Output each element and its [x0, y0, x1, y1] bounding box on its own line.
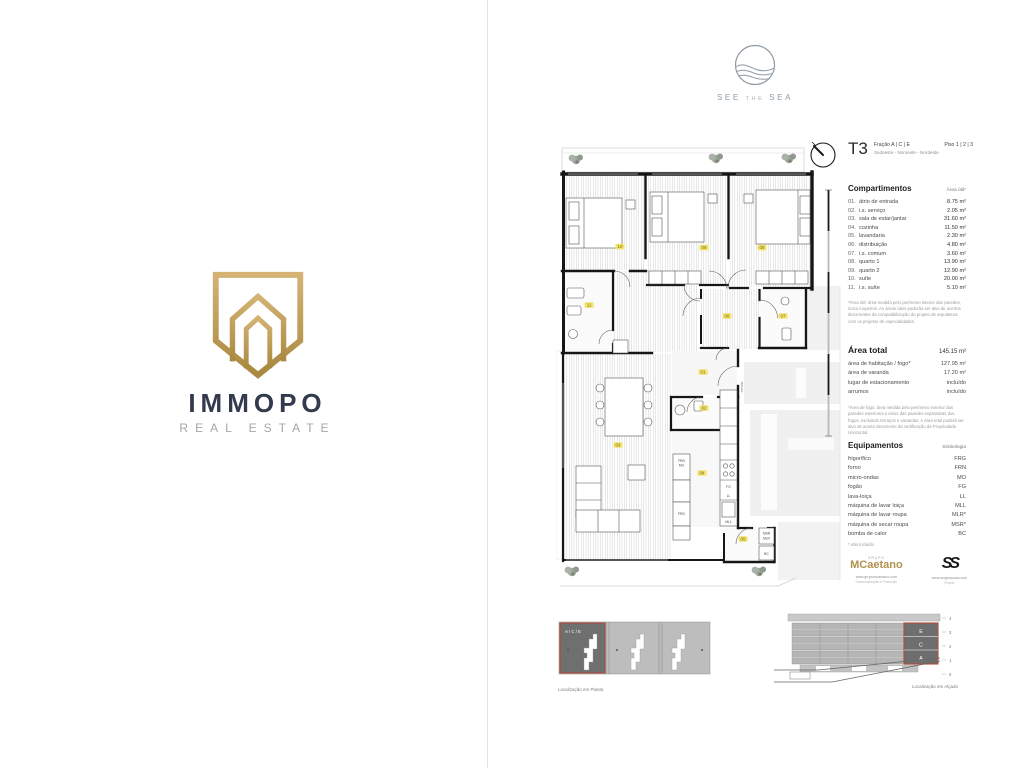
equipment-label: máquina de lavar loiça: [848, 502, 904, 511]
tag-frn: FRN: [678, 459, 685, 463]
tag-fg: FG: [726, 485, 731, 489]
fraction-label: Fração A | C | E: [874, 142, 910, 148]
compartment-row: 06.distribuição4.80 m²: [848, 241, 966, 250]
equipment-label: forno: [848, 464, 861, 473]
equipment-code: FG: [958, 483, 966, 492]
compass-icon: [811, 142, 835, 167]
room-area: 31.60 m²: [944, 215, 966, 224]
room-label-sala: 03: [616, 443, 621, 448]
totals-row-label: área de varanda: [848, 369, 889, 378]
room-label-suite: 10: [618, 244, 623, 249]
room-name: distribuição: [859, 241, 947, 250]
equipment-row: máquina de lavar roupaMLR*: [848, 511, 966, 520]
room-number: 01.: [848, 198, 859, 207]
panel-divider: [487, 0, 488, 768]
room-number: 05.: [848, 232, 859, 241]
totals-row: área de varanda17.20 m²: [848, 369, 966, 378]
equipment-row: máquina de secar roupaMSR*: [848, 521, 966, 530]
room-area: 5.10 m²: [947, 284, 966, 293]
room-number: 06.: [848, 241, 859, 250]
room-number: 11.: [848, 284, 859, 293]
sts-word-the: THE: [746, 96, 765, 102]
compartment-row: 02.i.s. serviço2.05 m²: [848, 207, 966, 216]
totals-row-label: lugar de estacionamento: [848, 379, 909, 388]
stack-unit-c: C: [919, 643, 923, 649]
equipment-code: BC: [958, 530, 966, 539]
area-column-header: Área útil*: [947, 188, 966, 193]
compartment-row: 03.sala de estar/jantar31.60 m²: [848, 215, 966, 224]
equipment-row: fornoFRN: [848, 464, 966, 473]
immopo-tagline: REAL ESTATE: [175, 422, 340, 434]
room-name: átrio de entrada: [859, 198, 947, 207]
area-fogo-footnote: *Área de fogo: área medida pelo perímetr…: [848, 405, 966, 437]
compartment-row: 08.quarto 113.90 m²: [848, 258, 966, 267]
sergio-wordmark: SS: [927, 556, 972, 572]
equipment-label: lava-loiça: [848, 493, 872, 502]
equipment-label: máquina de lavar roupa: [848, 511, 907, 520]
totals-list: área de habitação / fogo*127.95 m² área …: [848, 360, 966, 398]
elevation-floor-numbers: 4 3 2 1 0: [942, 616, 952, 677]
plant-icon: [752, 567, 766, 577]
mcaetano-role: Comercialização e Promoção: [842, 580, 911, 584]
location-plan-diagram: A / C / E: [558, 618, 712, 684]
compartments-list: 01.átrio de entrada8.75 m² 02.i.s. servi…: [848, 198, 966, 293]
compartments-section: Compartimentos Área útil* 01.átrio de en…: [848, 184, 966, 325]
room-label-is-comum: 07: [781, 314, 786, 319]
room-label-quarto1: 08: [760, 245, 765, 250]
symbol-column-header: Simbologia: [942, 445, 966, 450]
stack-unit-a: A: [919, 656, 923, 662]
compartment-row: 07.i.s. comum3.60 m²: [848, 250, 966, 259]
see-the-sea-wordmark: SEE THE SEA: [703, 93, 807, 102]
see-the-sea-logo-block: SEE THE SEA: [703, 42, 807, 102]
compartments-title: Compartimentos: [848, 184, 912, 193]
room-name: quarto 2: [859, 267, 944, 276]
sergio-role: Projeto: [927, 581, 972, 585]
room-area: 3.60 m²: [947, 250, 966, 259]
equipment-row: lava-loiçaLL: [848, 493, 966, 502]
equipment-code: FRN: [955, 464, 967, 473]
equipment-title: Equipamentos: [848, 441, 903, 450]
room-number: 09.: [848, 267, 859, 276]
totals-row-value: incluído: [947, 388, 966, 397]
mcaetano-wordmark: MCaetano: [842, 560, 911, 571]
compartment-row: 10.suíte20.00 m²: [848, 275, 966, 284]
compartment-row: 09.quarto 212.90 m²: [848, 267, 966, 276]
floor-number-3: 3: [949, 630, 952, 635]
tag-entrada: entrada: [740, 381, 744, 392]
partner-logos: GRUPO MCaetano www.grupomcaetano.com Com…: [842, 556, 972, 585]
location-elevation-caption: Localização em Alçado: [858, 684, 958, 689]
orientation-label: Sudoeste - Noroeste - Nordeste: [874, 150, 973, 155]
compartment-row: 04.cozinha11.50 m²: [848, 224, 966, 233]
unit-header: T3 Fração A | C | E Piso 1 | 2 | 3 Sudoe…: [848, 140, 973, 157]
room-area: 2.05 m²: [947, 207, 966, 216]
room-label-quarto2: 09: [702, 245, 707, 250]
immopo-logo-block: IMMOPO REAL ESTATE: [175, 268, 340, 434]
room-name: lavandaria: [859, 232, 947, 241]
room-label-distribuicao: 06: [725, 314, 730, 319]
room-number: 10.: [848, 275, 859, 284]
compartment-row: 05.lavandaria2.30 m²: [848, 232, 966, 241]
room-number: 04.: [848, 224, 859, 233]
equipment-label: micro-ondas: [848, 474, 879, 483]
floor-plan: FRN MO FRG FG LL MLL MSR MLR BC entrada …: [556, 138, 844, 602]
room-area: 2.30 m²: [947, 232, 966, 241]
immopo-name: IMMOPO: [175, 390, 340, 416]
room-label-lavandaria: 05: [741, 537, 746, 542]
tag-mll: MLL: [725, 520, 731, 524]
room-name: cozinha: [859, 224, 944, 233]
floor-number-2: 2: [949, 644, 952, 649]
equipment-label: fogão: [848, 483, 862, 492]
tag-mlr: MLR: [763, 537, 770, 541]
terrace-bottom: [560, 567, 796, 587]
tag-frg: FRG: [678, 512, 685, 516]
plan-unit-label: A / C / E: [565, 629, 581, 634]
sts-word-sea: SEA: [769, 93, 793, 102]
location-plan-caption: Localização em Planta: [558, 687, 678, 692]
totals-row: lugar de estacionamentoincluído: [848, 379, 966, 388]
not-included-note: * não incluído: [848, 542, 966, 547]
room-number: 03.: [848, 215, 859, 224]
typology-label: T3: [848, 140, 868, 157]
room-name: suíte: [859, 275, 944, 284]
floors-label: Piso 1 | 2 | 3: [944, 142, 973, 148]
total-area-value: 145.15 m²: [939, 349, 966, 355]
stack-unit-e: E: [919, 629, 923, 635]
room-name: quarto 1: [859, 258, 944, 267]
equipment-list: frigoríficoFRG fornoFRN micro-ondasMO fo…: [848, 455, 966, 540]
equipment-code: MLR*: [952, 511, 966, 520]
totals-section: Área total 145.15 m² área de habitação /…: [848, 345, 966, 437]
floor-number-4: 4: [949, 616, 952, 621]
room-area: 20.00 m²: [944, 275, 966, 284]
room-name: i.s. serviço: [859, 207, 947, 216]
floor-number-1: 1: [949, 658, 952, 663]
equipment-section: Equipamentos Simbologia frigoríficoFRG f…: [848, 441, 966, 547]
terrace-top: [562, 148, 804, 172]
room-area: 13.90 m²: [944, 258, 966, 267]
brochure-page: { "branding": { "immopo": {"name": "IMMO…: [0, 0, 1024, 768]
equipment-row: frigoríficoFRG: [848, 455, 966, 464]
sergio-url: www.sergiosousa.com: [927, 576, 972, 580]
mcaetano-initial: M: [850, 559, 859, 571]
room-area: 8.75 m²: [947, 198, 966, 207]
room-area: 4.80 m²: [947, 241, 966, 250]
equipment-code: MO: [957, 474, 966, 483]
tag-mo: MO: [679, 464, 685, 468]
plant-icon: [565, 567, 579, 577]
totals-row-label: área de habitação / fogo*: [848, 360, 911, 369]
equipment-label: bomba de calor: [848, 530, 887, 539]
compartment-row: 01.átrio de entrada8.75 m²: [848, 198, 966, 207]
sts-word-see: SEE: [717, 93, 741, 102]
equipment-row: fogãoFG: [848, 483, 966, 492]
equipment-label: frigorífico: [848, 455, 871, 464]
equipment-label: máquina de secar roupa: [848, 521, 908, 530]
room-number: 07.: [848, 250, 859, 259]
equipment-code: FRG: [954, 455, 966, 464]
room-name: i.s. suíte: [859, 284, 947, 293]
highlighted-stack: E C A: [904, 623, 938, 664]
floor-number-0: 0: [949, 672, 952, 677]
room-name: sala de estar/jantar: [859, 215, 944, 224]
tag-bc: BC: [764, 552, 769, 556]
room-label-is-suite: 11: [587, 303, 592, 308]
mcaetano-url: www.grupomcaetano.com: [842, 575, 911, 579]
equipment-code: LL: [960, 493, 966, 502]
room-label-is-servico: 02: [702, 406, 707, 411]
room-label-cozinha: 04: [700, 471, 705, 476]
totals-row: área de habitação / fogo*127.95 m²: [848, 360, 966, 369]
immopo-shield-icon: [199, 268, 317, 380]
equipment-row: máquina de lavar loiçaMLL: [848, 502, 966, 511]
sergio-logo-block: SS www.sergiosousa.com Projeto: [927, 556, 972, 585]
equipment-code: MLL: [955, 502, 966, 511]
equipment-row: bomba de calorBC: [848, 530, 966, 539]
unit-header-details: Fração A | C | E Piso 1 | 2 | 3 Sudoeste…: [874, 142, 973, 155]
room-area: 12.90 m²: [944, 267, 966, 276]
totals-title: Área total: [848, 345, 887, 355]
area-util-footnote: *Área útil: área medida pelo perímetro i…: [848, 300, 966, 326]
mcaetano-logo-block: GRUPO MCaetano www.grupomcaetano.com Com…: [842, 556, 911, 584]
equipment-code: MSR*: [951, 521, 966, 530]
mcaetano-rest: Caetano: [859, 559, 902, 571]
totals-row-value: 127.95 m²: [941, 360, 966, 369]
totals-row-label: arrumos: [848, 388, 869, 397]
tag-ll: LL: [727, 494, 731, 498]
totals-row: arrumosincluído: [848, 388, 966, 397]
room-area: 11.50 m²: [944, 224, 966, 233]
room-label-atrio: 01: [701, 370, 706, 375]
tag-msr: MSR: [763, 532, 771, 536]
see-the-sea-wave-icon: [732, 42, 778, 88]
location-elevation-diagram: E C A 4 3 2 1 0: [772, 608, 958, 686]
compartment-row: 11.i.s. suíte5.10 m²: [848, 284, 966, 293]
room-name: i.s. comum: [859, 250, 947, 259]
room-number: 02.: [848, 207, 859, 216]
totals-row-value: 17.20 m²: [944, 369, 966, 378]
equipment-row: micro-ondasMO: [848, 474, 966, 483]
room-number: 08.: [848, 258, 859, 267]
totals-row-value: incluído: [947, 379, 966, 388]
